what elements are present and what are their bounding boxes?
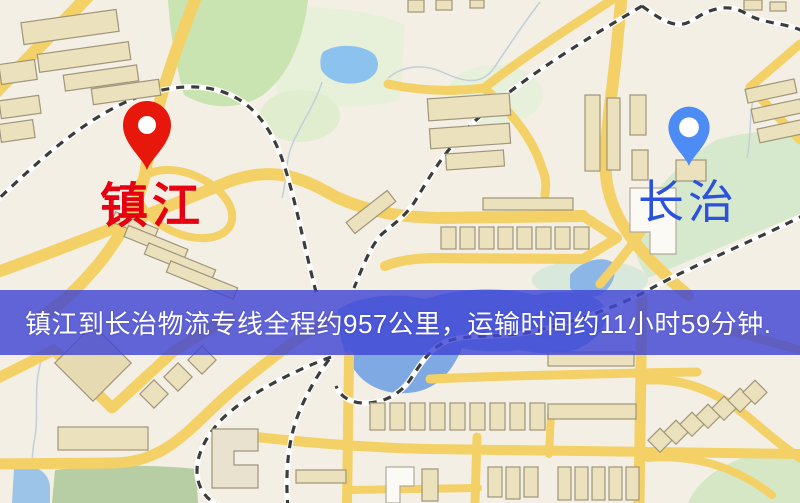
map-graphic: 镇江 长治	[0, 0, 800, 503]
route-info-banner: 镇江到长治物流专线全程约957公里，运输时间约11小时59分钟.	[0, 290, 800, 355]
map-image: 镇江 长治 镇江到长治物流专线全程约957公里，运输时间约11小时59分钟.	[0, 0, 800, 503]
origin-label: 镇江	[100, 180, 204, 233]
route-info-text: 镇江到长治物流专线全程约957公里，运输时间约11小时59分钟.	[0, 304, 772, 341]
destination-label: 长治	[638, 176, 738, 228]
